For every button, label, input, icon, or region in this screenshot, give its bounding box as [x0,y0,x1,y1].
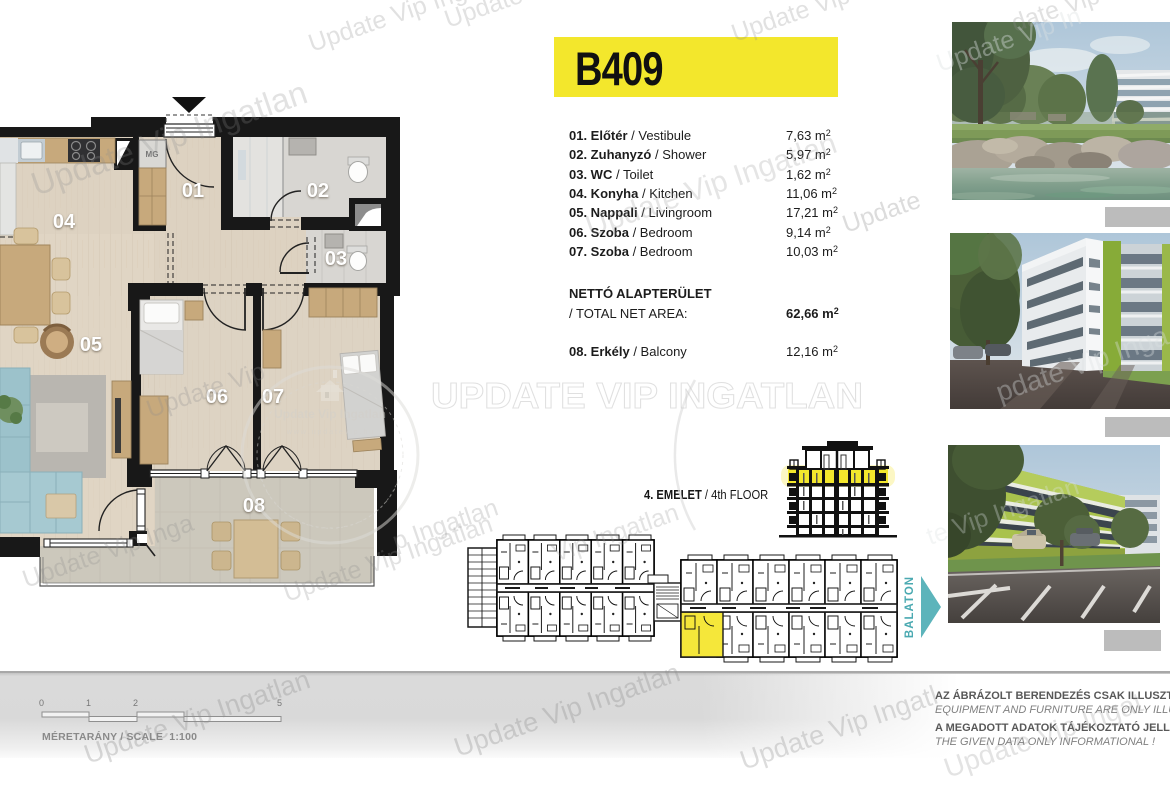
svg-text:Update Vip I: Update Vip I [728,0,867,48]
svg-text:Update: Update [839,186,924,239]
svg-text:04: 04 [53,211,76,233]
svg-text:BALATON: BALATON [904,576,916,638]
svg-text:Update Vip Ingat: Update Vip Ingat [940,687,1147,784]
svg-text:05: 05 [80,334,102,356]
svg-text:Update Vip Ingatlan: Update Vip Ingatlan [274,407,386,421]
svg-text:01: 01 [182,180,204,202]
svg-text:w w w . u p d a t e v i p . h: w w w . u p d a t e v i p . h u [286,429,373,436]
svg-text:UPDATE VIP INGATLAN: UPDATE VIP INGATLAN [431,375,863,416]
svg-text:02: 02 [307,180,329,202]
svg-text:Update Vi: Update Vi [441,0,554,34]
svg-text:Update Vip Ingatlan: Update Vip Ingatlan [450,657,684,762]
svg-text:03: 03 [325,248,347,270]
svg-text:Update Vip Ingatl: Update Vip Ingatl [736,680,941,776]
svg-text:Update Vip Ingatlan: Update Vip Ingatlan [582,127,841,244]
